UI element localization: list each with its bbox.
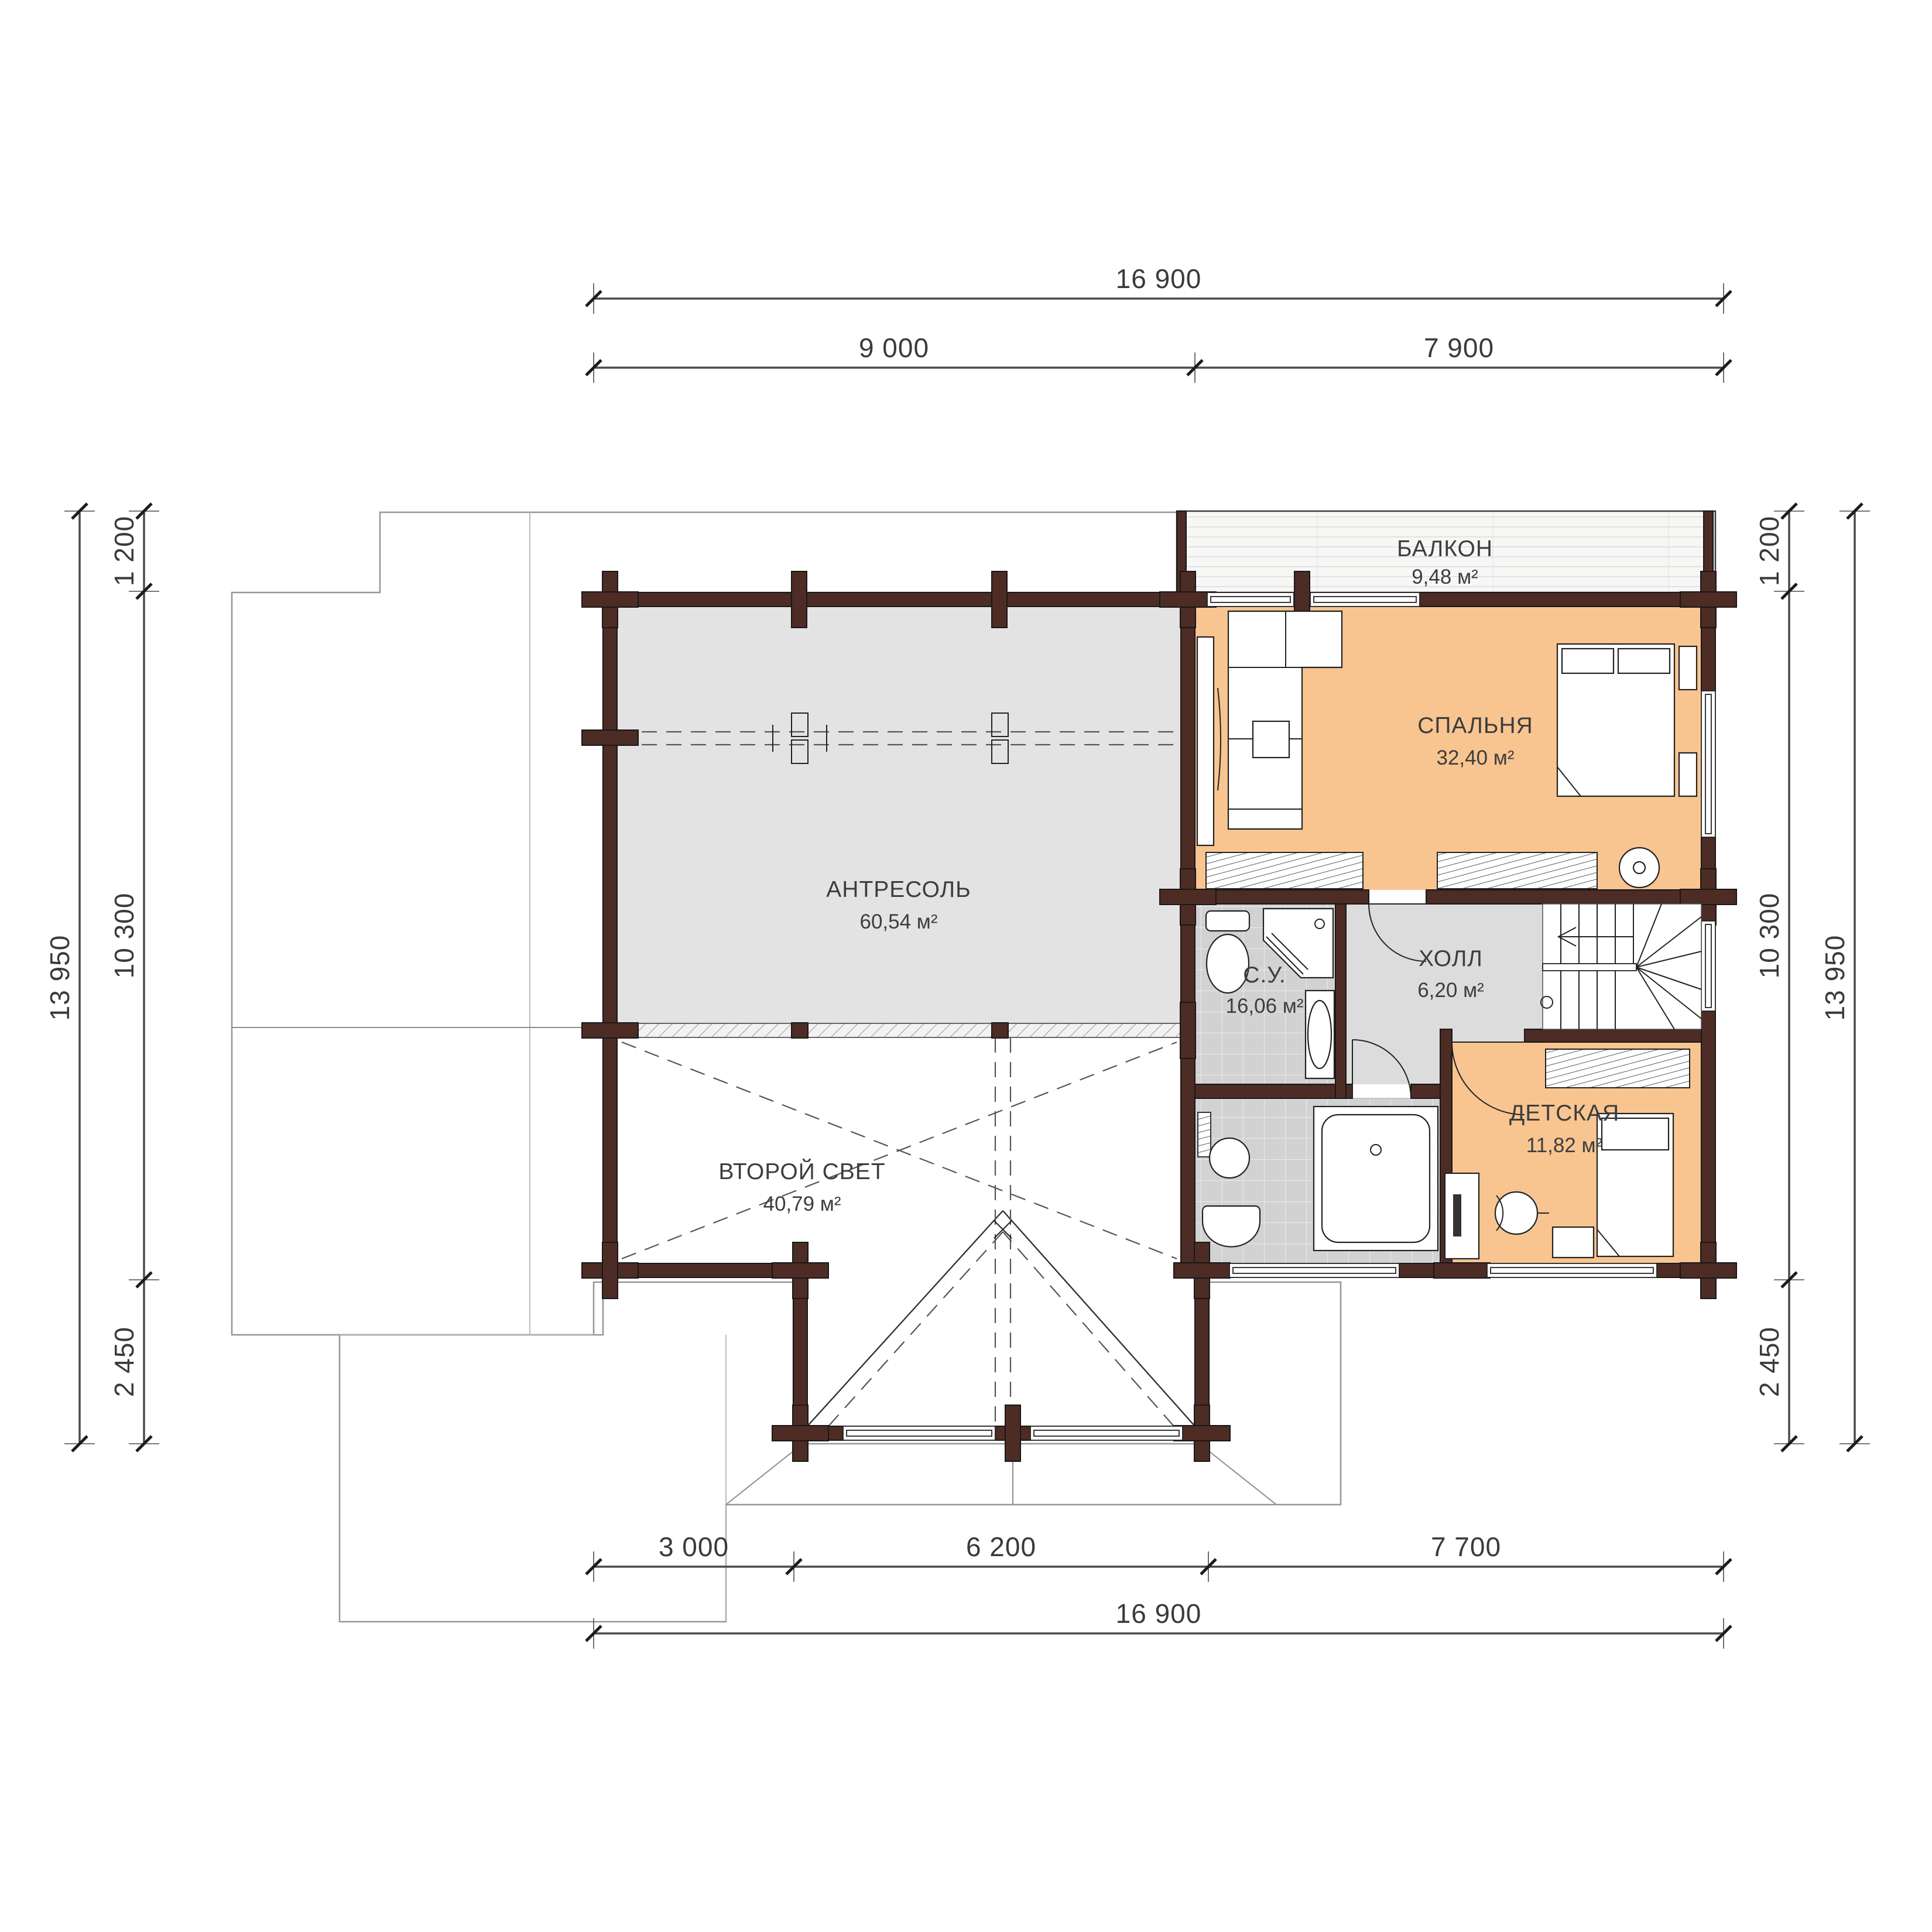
dim-left-1: 1 200 xyxy=(109,516,139,586)
porch-window-1 xyxy=(843,1426,995,1440)
dim-bottom-total: 16 900 xyxy=(1116,1598,1202,1629)
wash-basin xyxy=(1210,1138,1249,1178)
stairs xyxy=(1541,904,1701,1029)
dim-top-right: 7 900 xyxy=(1424,333,1494,363)
mezzanine-area: 60,54 м² xyxy=(859,910,937,933)
bathtub xyxy=(1314,1107,1438,1251)
dim-right-2: 10 300 xyxy=(1754,893,1784,979)
dim-left-3: 2 450 xyxy=(109,1327,139,1397)
bedroom-area: 32,40 м² xyxy=(1436,746,1514,769)
balcony-area: 9,48 м² xyxy=(1412,566,1478,588)
bedroom-label: СПАЛЬНЯ xyxy=(1417,713,1533,738)
floor-plan: БАЛКОН 9,48 м² СПАЛЬНЯ 32,40 м² АНТРЕСОЛ… xyxy=(0,0,1932,1932)
dim-bottom-1: 3 000 xyxy=(659,1532,729,1562)
nightstand-1 xyxy=(1679,646,1697,690)
nightstand-2 xyxy=(1679,753,1697,796)
dim-bottom-2: 6 200 xyxy=(966,1532,1036,1562)
void-area: 40,79 м² xyxy=(763,1193,841,1215)
kids-bed xyxy=(1597,1114,1673,1256)
dim-right-3: 2 450 xyxy=(1754,1327,1784,1397)
mezzanine-railing xyxy=(617,1023,1181,1037)
dim-left-total: 13 950 xyxy=(44,935,75,1021)
wardrobe-2 xyxy=(1437,852,1597,889)
void-label: ВТОРОЙ СВЕТ xyxy=(718,1158,885,1184)
hall-label: ХОЛЛ xyxy=(1419,946,1483,971)
bathroom-area: 16,06 м² xyxy=(1225,995,1303,1018)
dim-top-total: 16 900 xyxy=(1116,263,1202,294)
mezzanine-floor xyxy=(617,607,1181,1023)
dim-right-total: 13 950 xyxy=(1820,935,1850,1021)
mezzanine-label: АНТРЕСОЛЬ xyxy=(826,877,971,902)
side-table xyxy=(1253,721,1289,758)
porch-floor xyxy=(807,1277,1195,1426)
kids-room-label: ДЕТСКАЯ xyxy=(1509,1101,1619,1126)
porch-window-2 xyxy=(1030,1426,1183,1440)
balcony-label: БАЛКОН xyxy=(1397,536,1493,561)
bedroom-window-1 xyxy=(1207,592,1294,607)
bath-window xyxy=(1229,1263,1399,1277)
kids-window xyxy=(1487,1263,1657,1277)
bedroom-window-2 xyxy=(1310,592,1420,607)
pouf xyxy=(1619,848,1659,888)
dim-right-1: 1 200 xyxy=(1754,516,1784,586)
dim-bottom-3: 7 700 xyxy=(1431,1532,1501,1562)
wardrobe-1 xyxy=(1206,852,1363,889)
hall-area: 6,20 м² xyxy=(1417,979,1484,1002)
stairs-window xyxy=(1701,921,1715,1011)
kids-room-area: 11,82 м² xyxy=(1526,1134,1602,1157)
kids-side-table xyxy=(1553,1227,1594,1258)
monitor xyxy=(1453,1194,1461,1236)
desk xyxy=(1445,1173,1479,1259)
dim-top-left: 9 000 xyxy=(859,333,929,363)
bath-shelf xyxy=(1198,1112,1211,1157)
bedroom-side-window xyxy=(1701,691,1715,837)
bathroom-label: С.У. xyxy=(1243,962,1286,988)
sink xyxy=(1306,991,1334,1078)
dim-left-2: 10 300 xyxy=(109,893,139,979)
kids-wardrobe xyxy=(1546,1049,1690,1088)
